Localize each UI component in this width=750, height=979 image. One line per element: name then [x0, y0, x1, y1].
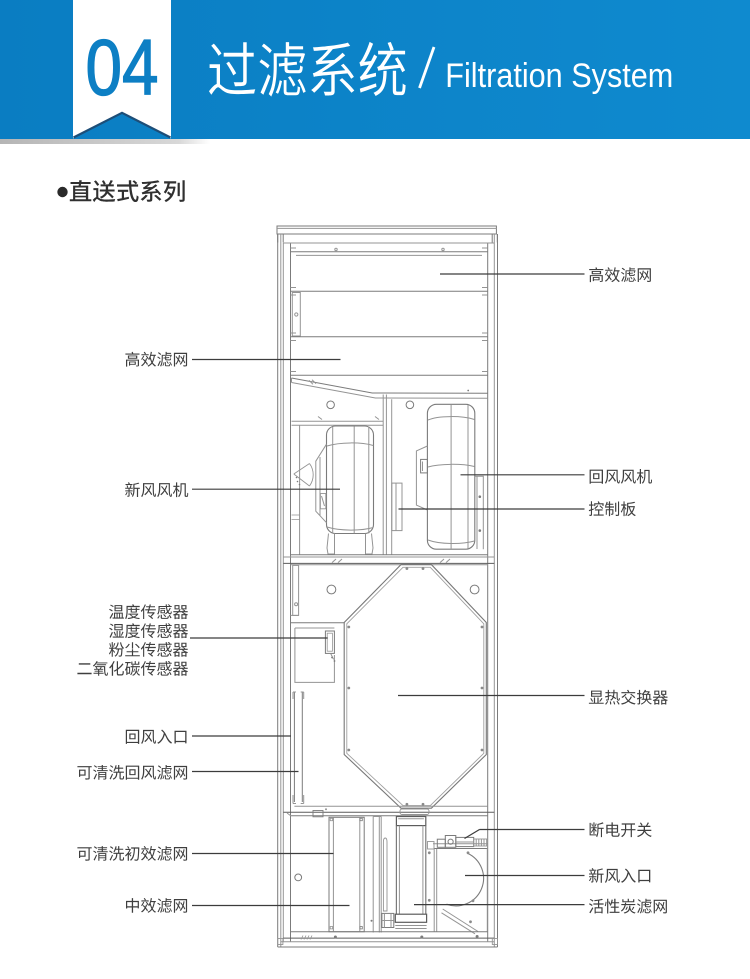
svg-text:Filtration System: Filtration System	[445, 57, 673, 95]
svg-text:04: 04	[86, 22, 159, 111]
